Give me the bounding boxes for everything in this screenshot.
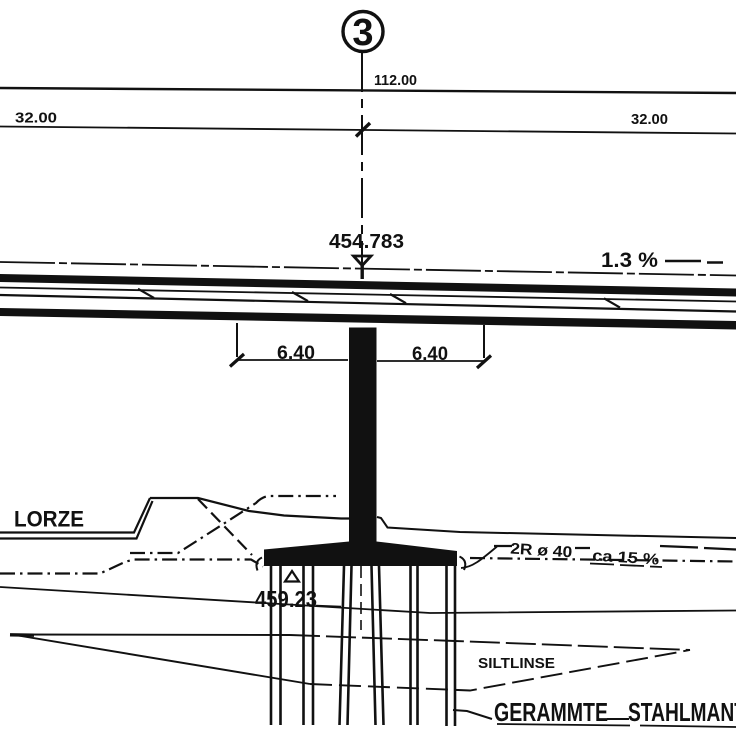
svg-text:454.783: 454.783 [329,231,404,253]
svg-text:GERAMMTE: GERAMMTE [494,697,608,727]
svg-text:3: 3 [352,12,373,54]
svg-text:SILTLINSE: SILTLINSE [478,655,555,672]
svg-text:32.00: 32.00 [15,110,57,127]
svg-text:112.00: 112.00 [374,72,417,89]
svg-text:LORZE: LORZE [14,507,84,532]
svg-text:6.40: 6.40 [277,343,315,364]
svg-text:STAHLMANT: STAHLMANT [628,697,736,727]
svg-text:459.23: 459.23 [255,586,317,612]
svg-text:6.40: 6.40 [412,344,448,365]
svg-text:32.00: 32.00 [631,111,668,128]
svg-text:1.3 %: 1.3 % [601,249,658,272]
